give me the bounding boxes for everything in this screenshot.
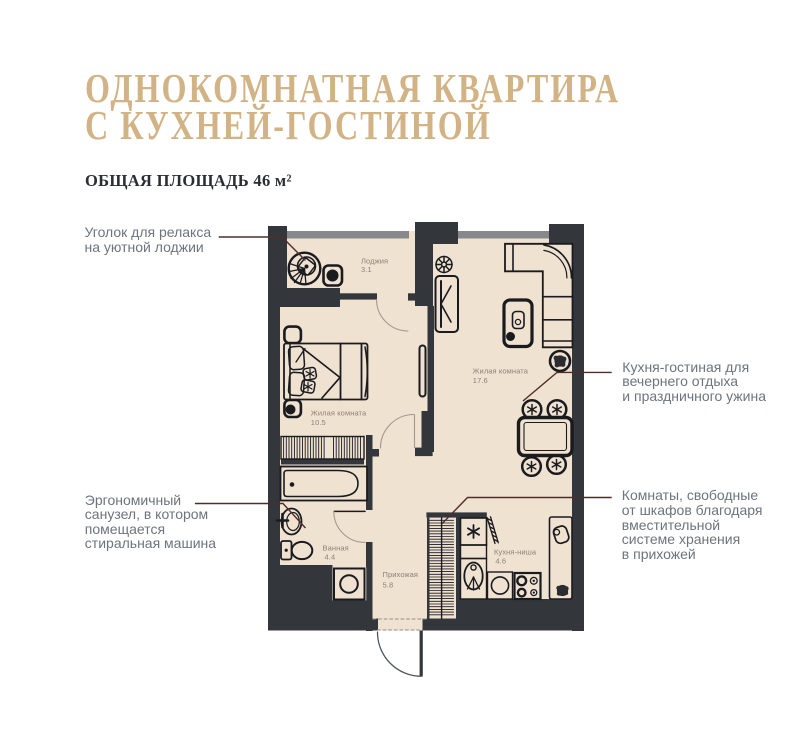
svg-text:Прихожая: Прихожая — [383, 570, 419, 579]
svg-text:3.1: 3.1 — [361, 265, 372, 274]
svg-text:4.6: 4.6 — [495, 557, 506, 566]
svg-text:4.4: 4.4 — [325, 553, 336, 562]
svg-text:Жилая комната: Жилая комната — [311, 409, 367, 418]
svg-text:Ванная: Ванная — [323, 544, 349, 553]
svg-text:5.8: 5.8 — [383, 580, 394, 589]
svg-text:17.6: 17.6 — [473, 376, 488, 385]
svg-text:10.5: 10.5 — [311, 418, 326, 427]
svg-text:Кухня-ниша: Кухня-ниша — [494, 548, 537, 557]
svg-text:Жилая комната: Жилая комната — [473, 367, 529, 376]
